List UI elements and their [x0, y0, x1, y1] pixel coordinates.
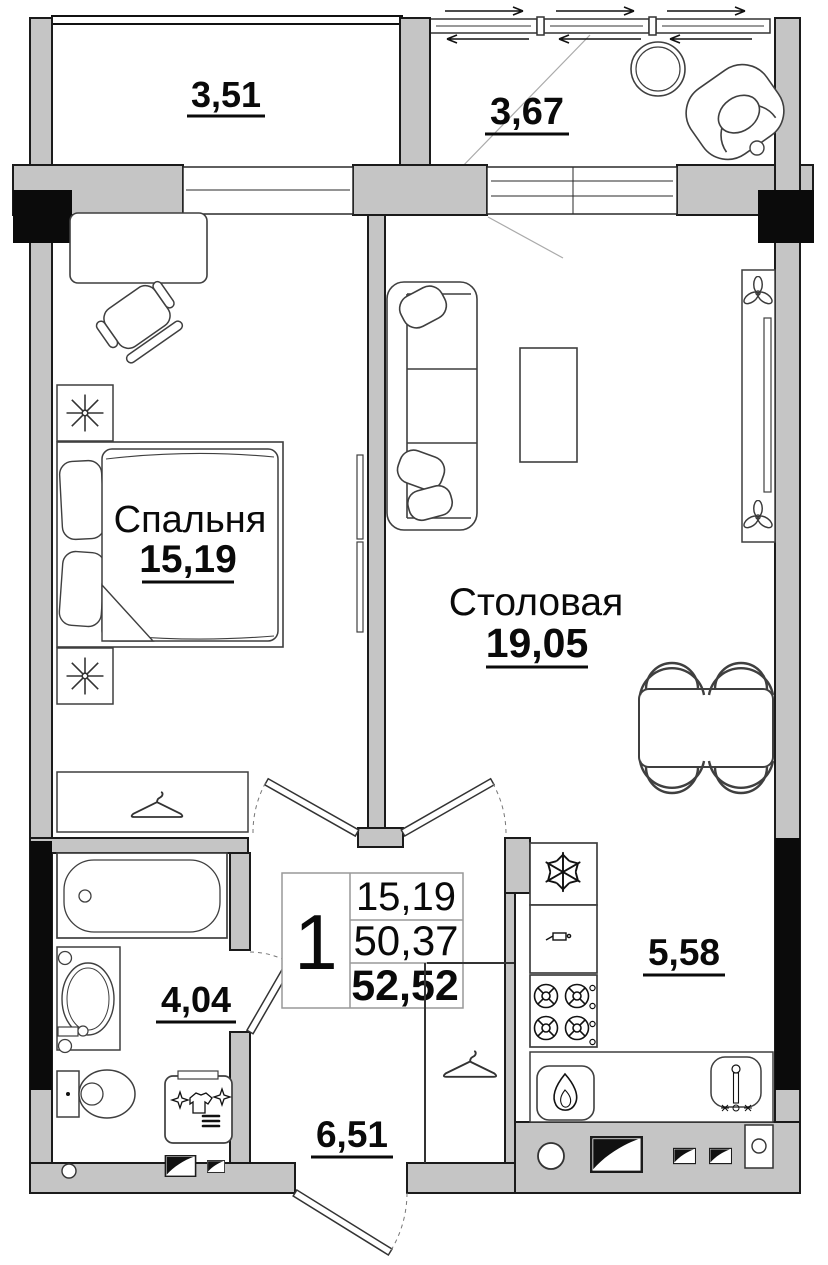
wall-bathroom-right-lower [230, 1032, 250, 1163]
riser [62, 1164, 76, 1178]
sliding-window-panels [430, 17, 770, 35]
floor-plan-svg: 3,51 3,67 Спальня 15,19 Столовая 19,05 4… [0, 0, 828, 1265]
column-left [30, 841, 52, 1090]
washbasin [57, 947, 120, 1053]
washing-machine [165, 1071, 232, 1143]
room-area-kitchen: 5,58 [648, 932, 720, 973]
cabinet [530, 905, 597, 973]
tv [764, 318, 771, 492]
column-top-left [13, 190, 72, 243]
summary-table: 1 15,19 50,37 52,52 [282, 873, 463, 1010]
total-area: 52,52 [351, 962, 459, 1010]
riser [538, 1143, 564, 1169]
round-table [631, 42, 685, 96]
room-label-dining: Столовая [449, 581, 623, 624]
column-top-right [758, 190, 814, 243]
desk [70, 213, 207, 283]
vent-icon [591, 1137, 642, 1172]
room-area-bathroom: 4,04 [161, 979, 231, 1020]
living-area: 15,19 [356, 875, 456, 919]
tv-stand [742, 270, 775, 542]
room-area-dining: 19,05 [486, 620, 589, 666]
wall-bottom-center [407, 1163, 515, 1193]
wall-bathroom-right-upper [230, 853, 250, 950]
tap-icon [58, 1027, 78, 1036]
fan-icon [67, 395, 104, 432]
pillow [58, 551, 105, 628]
wall-center-stub [358, 828, 403, 847]
wall-bathroom-top [30, 838, 248, 853]
vent-icon [165, 1156, 195, 1177]
room-area-balcony-right: 3,67 [490, 91, 564, 133]
wall-top-center [353, 165, 487, 215]
toilet [57, 1070, 135, 1118]
kitchen-sink [711, 1057, 761, 1111]
fan-icon [67, 658, 104, 695]
wall-panel [357, 542, 363, 632]
vent-icon [673, 1148, 695, 1163]
room-area-balcony-left: 3,51 [191, 74, 261, 115]
tap-icon [734, 1073, 739, 1103]
vent-icon [709, 1148, 731, 1163]
room-area-bedroom: 15,19 [139, 538, 237, 581]
rooms-count: 1 [294, 898, 337, 986]
pillow [59, 460, 105, 540]
wall-kitchen-left [505, 893, 515, 1163]
stove [530, 975, 597, 1047]
vent-icon [207, 1161, 224, 1173]
gas-heater [537, 1066, 594, 1120]
wall-bedroom-dining [368, 215, 385, 828]
balcony-left-parapet [52, 16, 402, 24]
bathtub [57, 853, 227, 938]
room-label-bedroom: Спальня [114, 499, 267, 541]
room-area-hallway: 6,51 [316, 1114, 388, 1155]
bedroom-wardrobe [57, 772, 248, 832]
wall-kitchen-stub [505, 838, 530, 893]
sofa [387, 281, 477, 530]
wall-panel [357, 455, 363, 539]
coffee-table [520, 348, 577, 462]
floor-plan: 3,51 3,67 Спальня 15,19 Столовая 19,05 4… [0, 0, 828, 1265]
dining-table [639, 689, 773, 767]
column-right [775, 838, 800, 1090]
wall-balcony-divider [400, 18, 430, 165]
area-without-balconies: 50,37 [353, 917, 458, 964]
dining-window [487, 167, 677, 214]
